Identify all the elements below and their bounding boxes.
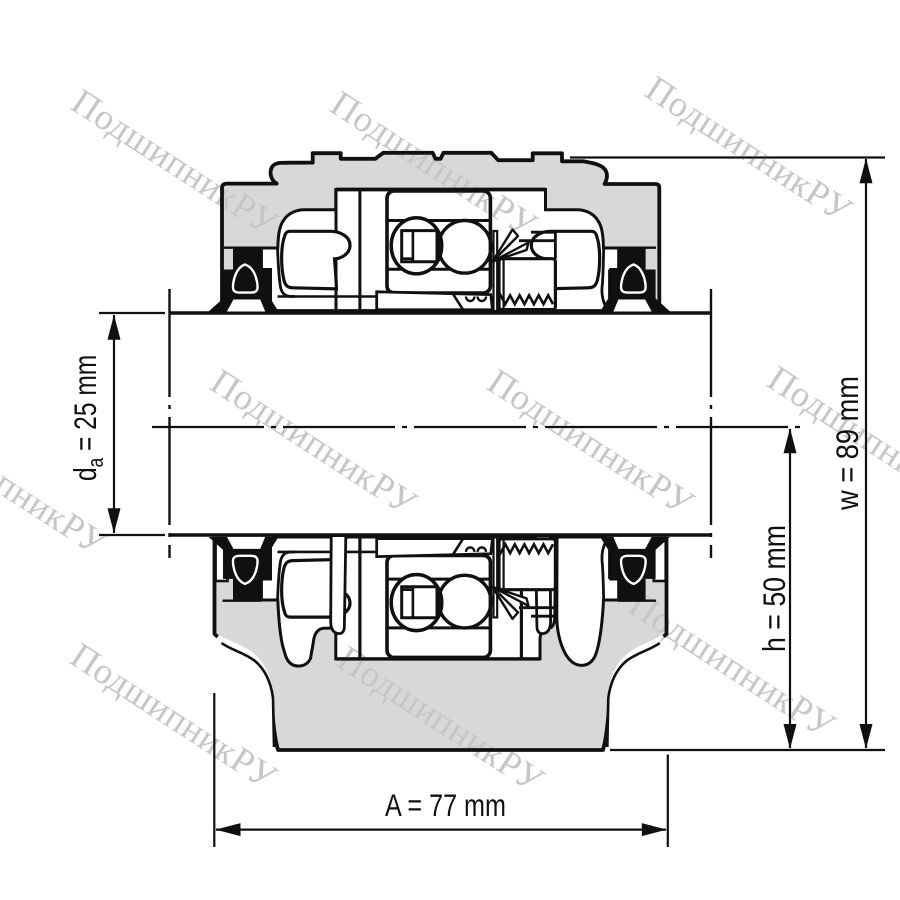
svg-text:A = 77 mm: A = 77 mm	[385, 787, 506, 823]
svg-text:h = 50 mm: h = 50 mm	[756, 525, 792, 652]
